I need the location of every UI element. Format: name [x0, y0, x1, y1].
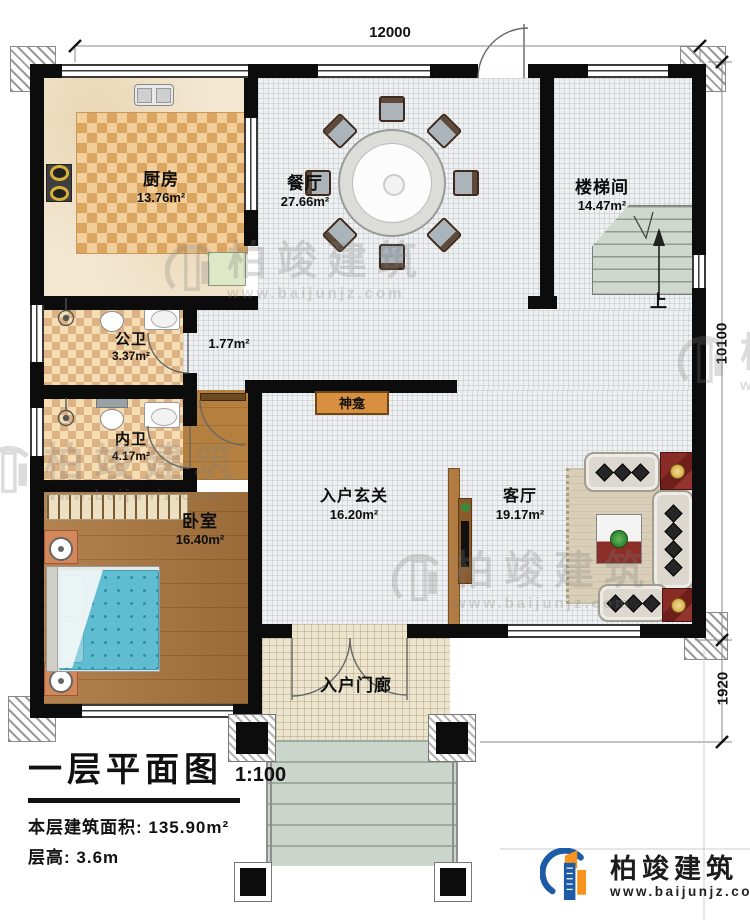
wall-segment	[248, 64, 318, 78]
wall-segment	[30, 456, 44, 718]
wall-segment	[248, 390, 262, 718]
brand-site: www.baijunjz.com	[610, 884, 750, 899]
room-label-living: 客厅19.17m²	[478, 488, 562, 522]
drawing-scale: 1:100	[235, 764, 286, 786]
wall-segment	[30, 704, 82, 718]
title-rule	[28, 798, 240, 803]
room-label-public-bath: 公卫3.37m²	[98, 331, 164, 363]
tv-console	[458, 498, 472, 584]
room-label-foyer: 入户玄关16.20m²	[306, 488, 402, 522]
side-table	[662, 588, 694, 622]
floor-height-line: 层高: 3.6m	[28, 843, 286, 868]
dining-chair	[379, 96, 405, 122]
wall-segment	[30, 64, 44, 305]
brand-logo-icon	[540, 848, 602, 906]
room-label-stairwell: 楼梯间14.47m²	[556, 178, 648, 213]
window	[30, 305, 44, 362]
wall-segment	[262, 624, 292, 638]
window	[692, 255, 706, 288]
room-label-porch: 入户门廊	[298, 676, 414, 696]
dining-chair	[379, 244, 405, 270]
wall-segment	[528, 296, 557, 309]
bath-sink-icon	[144, 402, 180, 428]
dim-width: 12000	[345, 24, 435, 41]
window	[82, 704, 233, 718]
wall-segment	[30, 296, 258, 310]
room-label-corridor: 1.77m²	[198, 336, 260, 351]
window	[588, 64, 668, 78]
wall-segment	[30, 480, 197, 492]
drawing-title: 一层平面图	[28, 751, 223, 789]
wall-segment	[692, 288, 706, 638]
wall-segment	[640, 624, 706, 638]
window	[244, 118, 258, 210]
sofa	[584, 452, 660, 492]
shrine-cabinet: 神龛	[315, 391, 389, 415]
window	[508, 624, 640, 638]
kitchen-sink	[134, 84, 174, 106]
room-label-bedroom: 卧室16.40m²	[158, 512, 242, 547]
wall-segment	[430, 64, 478, 78]
tv-icon	[461, 521, 469, 567]
wall-segment	[244, 78, 258, 118]
dim-height-porch: 1920	[715, 664, 732, 714]
title-block: 一层平面图1:100 本层建筑面积: 135.90m² 层高: 3.6m	[28, 742, 286, 868]
stairs-up-label: 上	[644, 292, 674, 312]
wall-segment	[183, 310, 197, 333]
wall-segment	[407, 624, 508, 638]
wall-segment	[244, 210, 258, 246]
wall-segment	[528, 64, 588, 78]
window	[318, 64, 430, 78]
plant-icon	[610, 530, 628, 548]
brand-name: 柏竣建筑	[610, 855, 750, 885]
floor-plan-canvas: 神龛	[0, 0, 750, 920]
room-label-dining: 餐厅27.66m²	[265, 174, 345, 209]
door-arc	[478, 28, 528, 78]
sofa	[652, 490, 694, 590]
dining-chair	[453, 170, 479, 196]
side-table	[660, 452, 694, 490]
shrine-label: 神龛	[339, 396, 365, 411]
wall-segment	[692, 64, 706, 255]
column	[234, 862, 272, 902]
toilet-icon	[96, 398, 128, 429]
wall-segment	[540, 78, 554, 300]
plant-icon	[461, 503, 470, 512]
bed	[46, 566, 160, 672]
room-label-kitchen: 厨房13.76m²	[118, 170, 204, 205]
bedroom-door-leaf	[200, 393, 246, 401]
nightstand	[44, 530, 78, 564]
window	[62, 64, 248, 78]
column	[434, 862, 472, 902]
column	[428, 714, 476, 762]
floor-area-line: 本层建筑面积: 135.90m²	[28, 813, 286, 838]
wall-segment	[183, 373, 197, 426]
brand-logo: 柏竣建筑 www.baijunjz.com	[540, 848, 750, 906]
wall-segment	[30, 385, 197, 399]
fridge-icon	[208, 252, 246, 286]
sofa	[598, 584, 668, 622]
dining-table	[338, 129, 446, 237]
room-label-private-bath: 内卫4.17m²	[98, 431, 164, 463]
window	[30, 408, 44, 456]
stove-icon	[46, 164, 72, 202]
coffee-table	[596, 514, 642, 564]
dim-height-main: 10100	[714, 314, 731, 374]
watermark-logo-icon	[0, 440, 34, 506]
